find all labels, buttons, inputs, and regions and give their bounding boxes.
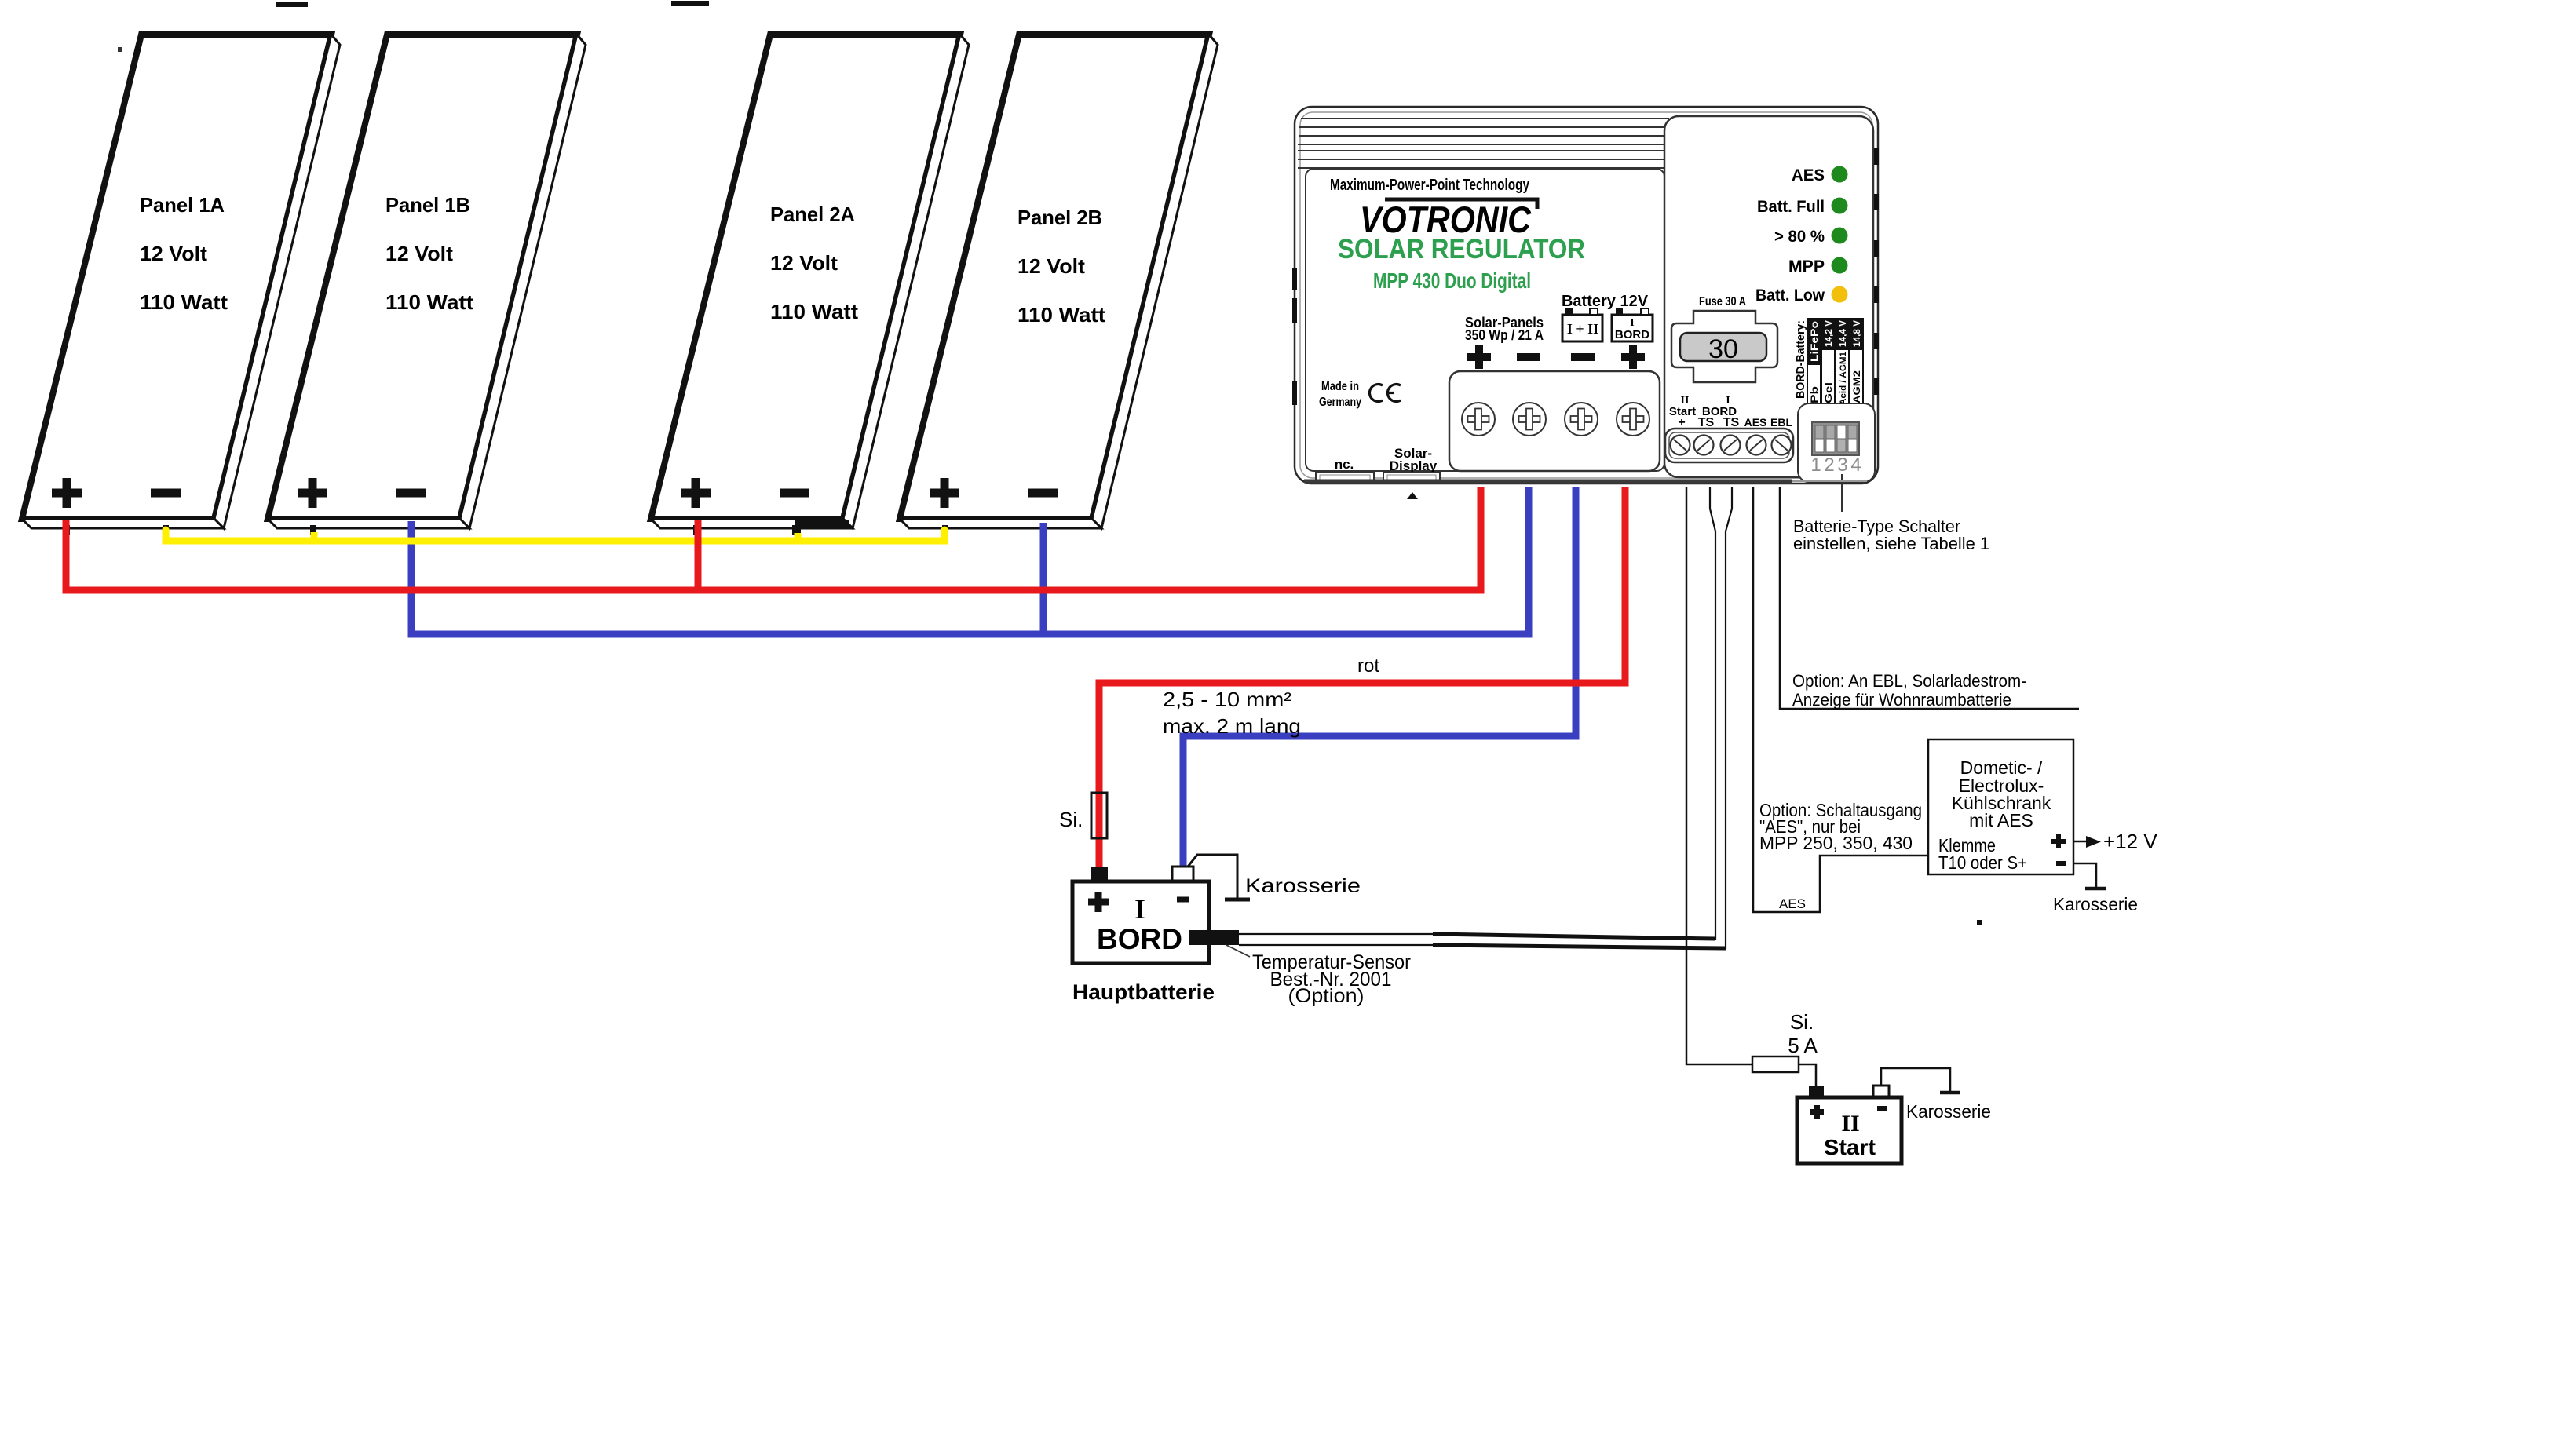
svg-text:Fuse 30 A: Fuse 30 A — [1699, 295, 1746, 308]
svg-text:Pb: Pb — [1809, 386, 1820, 403]
svg-text:max. 2 m lang: max. 2 m lang — [1163, 714, 1301, 738]
svg-text:AES: AES — [1792, 166, 1825, 184]
svg-text:110 Watt: 110 Watt — [140, 290, 228, 314]
svg-text:Si.: Si. — [1790, 1010, 1814, 1034]
svg-text:4: 4 — [1850, 454, 1861, 476]
svg-text:Made in: Made in — [1321, 380, 1359, 393]
svg-text:110 Watt: 110 Watt — [770, 300, 858, 323]
svg-text:I + II: I + II — [1567, 321, 1598, 337]
svg-text:Anzeige für Wohnraumbatterie: Anzeige für Wohnraumbatterie — [1792, 690, 2011, 710]
svg-text:TS: TS — [1698, 416, 1715, 429]
svg-text:12 Volt: 12 Volt — [770, 251, 838, 275]
svg-text:MPP 250, 350, 430: MPP 250, 350, 430 — [1759, 833, 1913, 853]
svg-text:2,5 - 10 mm²: 2,5 - 10 mm² — [1163, 688, 1291, 711]
svg-text:MPP 430 Duo Digital: MPP 430 Duo Digital — [1373, 268, 1531, 293]
svg-text:BORD-Battery:: BORD-Battery: — [1794, 320, 1807, 399]
svg-text:Karosserie: Karosserie — [1906, 1101, 1991, 1122]
svg-text:12 Volt: 12 Volt — [385, 242, 453, 265]
svg-text:MPP: MPP — [1788, 257, 1825, 276]
svg-text:12 Volt: 12 Volt — [1017, 254, 1085, 278]
svg-text:110 Watt: 110 Watt — [385, 290, 473, 314]
svg-text:T10 oder S+: T10 oder S+ — [1938, 852, 2027, 873]
svg-text:+12 V: +12 V — [2103, 830, 2157, 853]
svg-text:I: I — [1630, 317, 1634, 329]
svg-text:Panel 1A: Panel 1A — [140, 193, 225, 217]
svg-text:II: II — [1841, 1111, 1859, 1137]
svg-text:Karosserie: Karosserie — [1245, 875, 1361, 897]
svg-text:Batt. Full: Batt. Full — [1757, 198, 1825, 216]
svg-text:Start: Start — [1824, 1135, 1876, 1159]
svg-text:TS: TS — [1723, 416, 1740, 429]
svg-text:12 Volt: 12 Volt — [140, 242, 207, 265]
svg-text:Gel: Gel — [1823, 382, 1834, 403]
svg-text:Germany: Germany — [1319, 396, 1361, 409]
svg-text:Option: An EBL, Solarladestrom: Option: An EBL, Solarladestrom- — [1792, 671, 2026, 691]
svg-text:AES: AES — [1744, 416, 1767, 429]
svg-text:BORD: BORD — [1097, 923, 1182, 955]
svg-text:Hauptbatterie: Hauptbatterie — [1072, 980, 1215, 1004]
svg-text:Si.: Si. — [1059, 808, 1083, 831]
svg-text:Panel 2A: Panel 2A — [770, 203, 855, 226]
svg-text:30: 30 — [1708, 334, 1738, 364]
svg-text:mit AES: mit AES — [1969, 810, 2033, 830]
svg-text:I: I — [1134, 893, 1145, 925]
svg-text:nc.: nc. — [1335, 457, 1354, 472]
svg-text:14,4 V: 14,4 V — [1837, 320, 1848, 347]
svg-text:Panel 1B: Panel 1B — [385, 193, 470, 217]
svg-text:Batt. Low: Batt. Low — [1755, 286, 1825, 305]
svg-text:EBL: EBL — [1770, 416, 1792, 429]
svg-text:Karosserie: Karosserie — [2053, 894, 2138, 914]
svg-text:Battery 12V: Battery 12V — [1562, 293, 1649, 310]
svg-text:5 A: 5 A — [1788, 1034, 1818, 1057]
svg-text:Display: Display — [1390, 458, 1438, 473]
svg-text:14,8 V: 14,8 V — [1851, 320, 1862, 347]
svg-text:(Option): (Option) — [1288, 985, 1365, 1007]
svg-text:LiFePo: LiFePo — [1809, 321, 1820, 362]
svg-text:> 80 %: > 80 % — [1774, 228, 1825, 246]
svg-text:SOLAR REGULATOR: SOLAR REGULATOR — [1338, 234, 1585, 265]
svg-text:AGM2: AGM2 — [1851, 370, 1862, 403]
svg-text:1: 1 — [1810, 454, 1821, 476]
svg-text:Acid / AGM1: Acid / AGM1 — [1839, 352, 1848, 405]
svg-text:2: 2 — [1824, 454, 1834, 476]
svg-text:3: 3 — [1837, 454, 1847, 476]
svg-text:einstellen, siehe Tabelle 1: einstellen, siehe Tabelle 1 — [1793, 534, 1989, 553]
svg-text:AES: AES — [1779, 896, 1806, 911]
svg-text:110 Watt: 110 Watt — [1017, 303, 1105, 327]
svg-text:rot: rot — [1357, 655, 1379, 677]
svg-text:14,2 V: 14,2 V — [1823, 320, 1834, 347]
svg-text:+: + — [1678, 416, 1685, 429]
svg-text:Maximum-Power-Point Technology: Maximum-Power-Point Technology — [1330, 177, 1530, 194]
svg-text:Panel 2B: Panel 2B — [1017, 206, 1102, 229]
svg-text:350 Wp / 21 A: 350 Wp / 21 A — [1465, 327, 1544, 343]
svg-text:BORD: BORD — [1615, 328, 1649, 341]
